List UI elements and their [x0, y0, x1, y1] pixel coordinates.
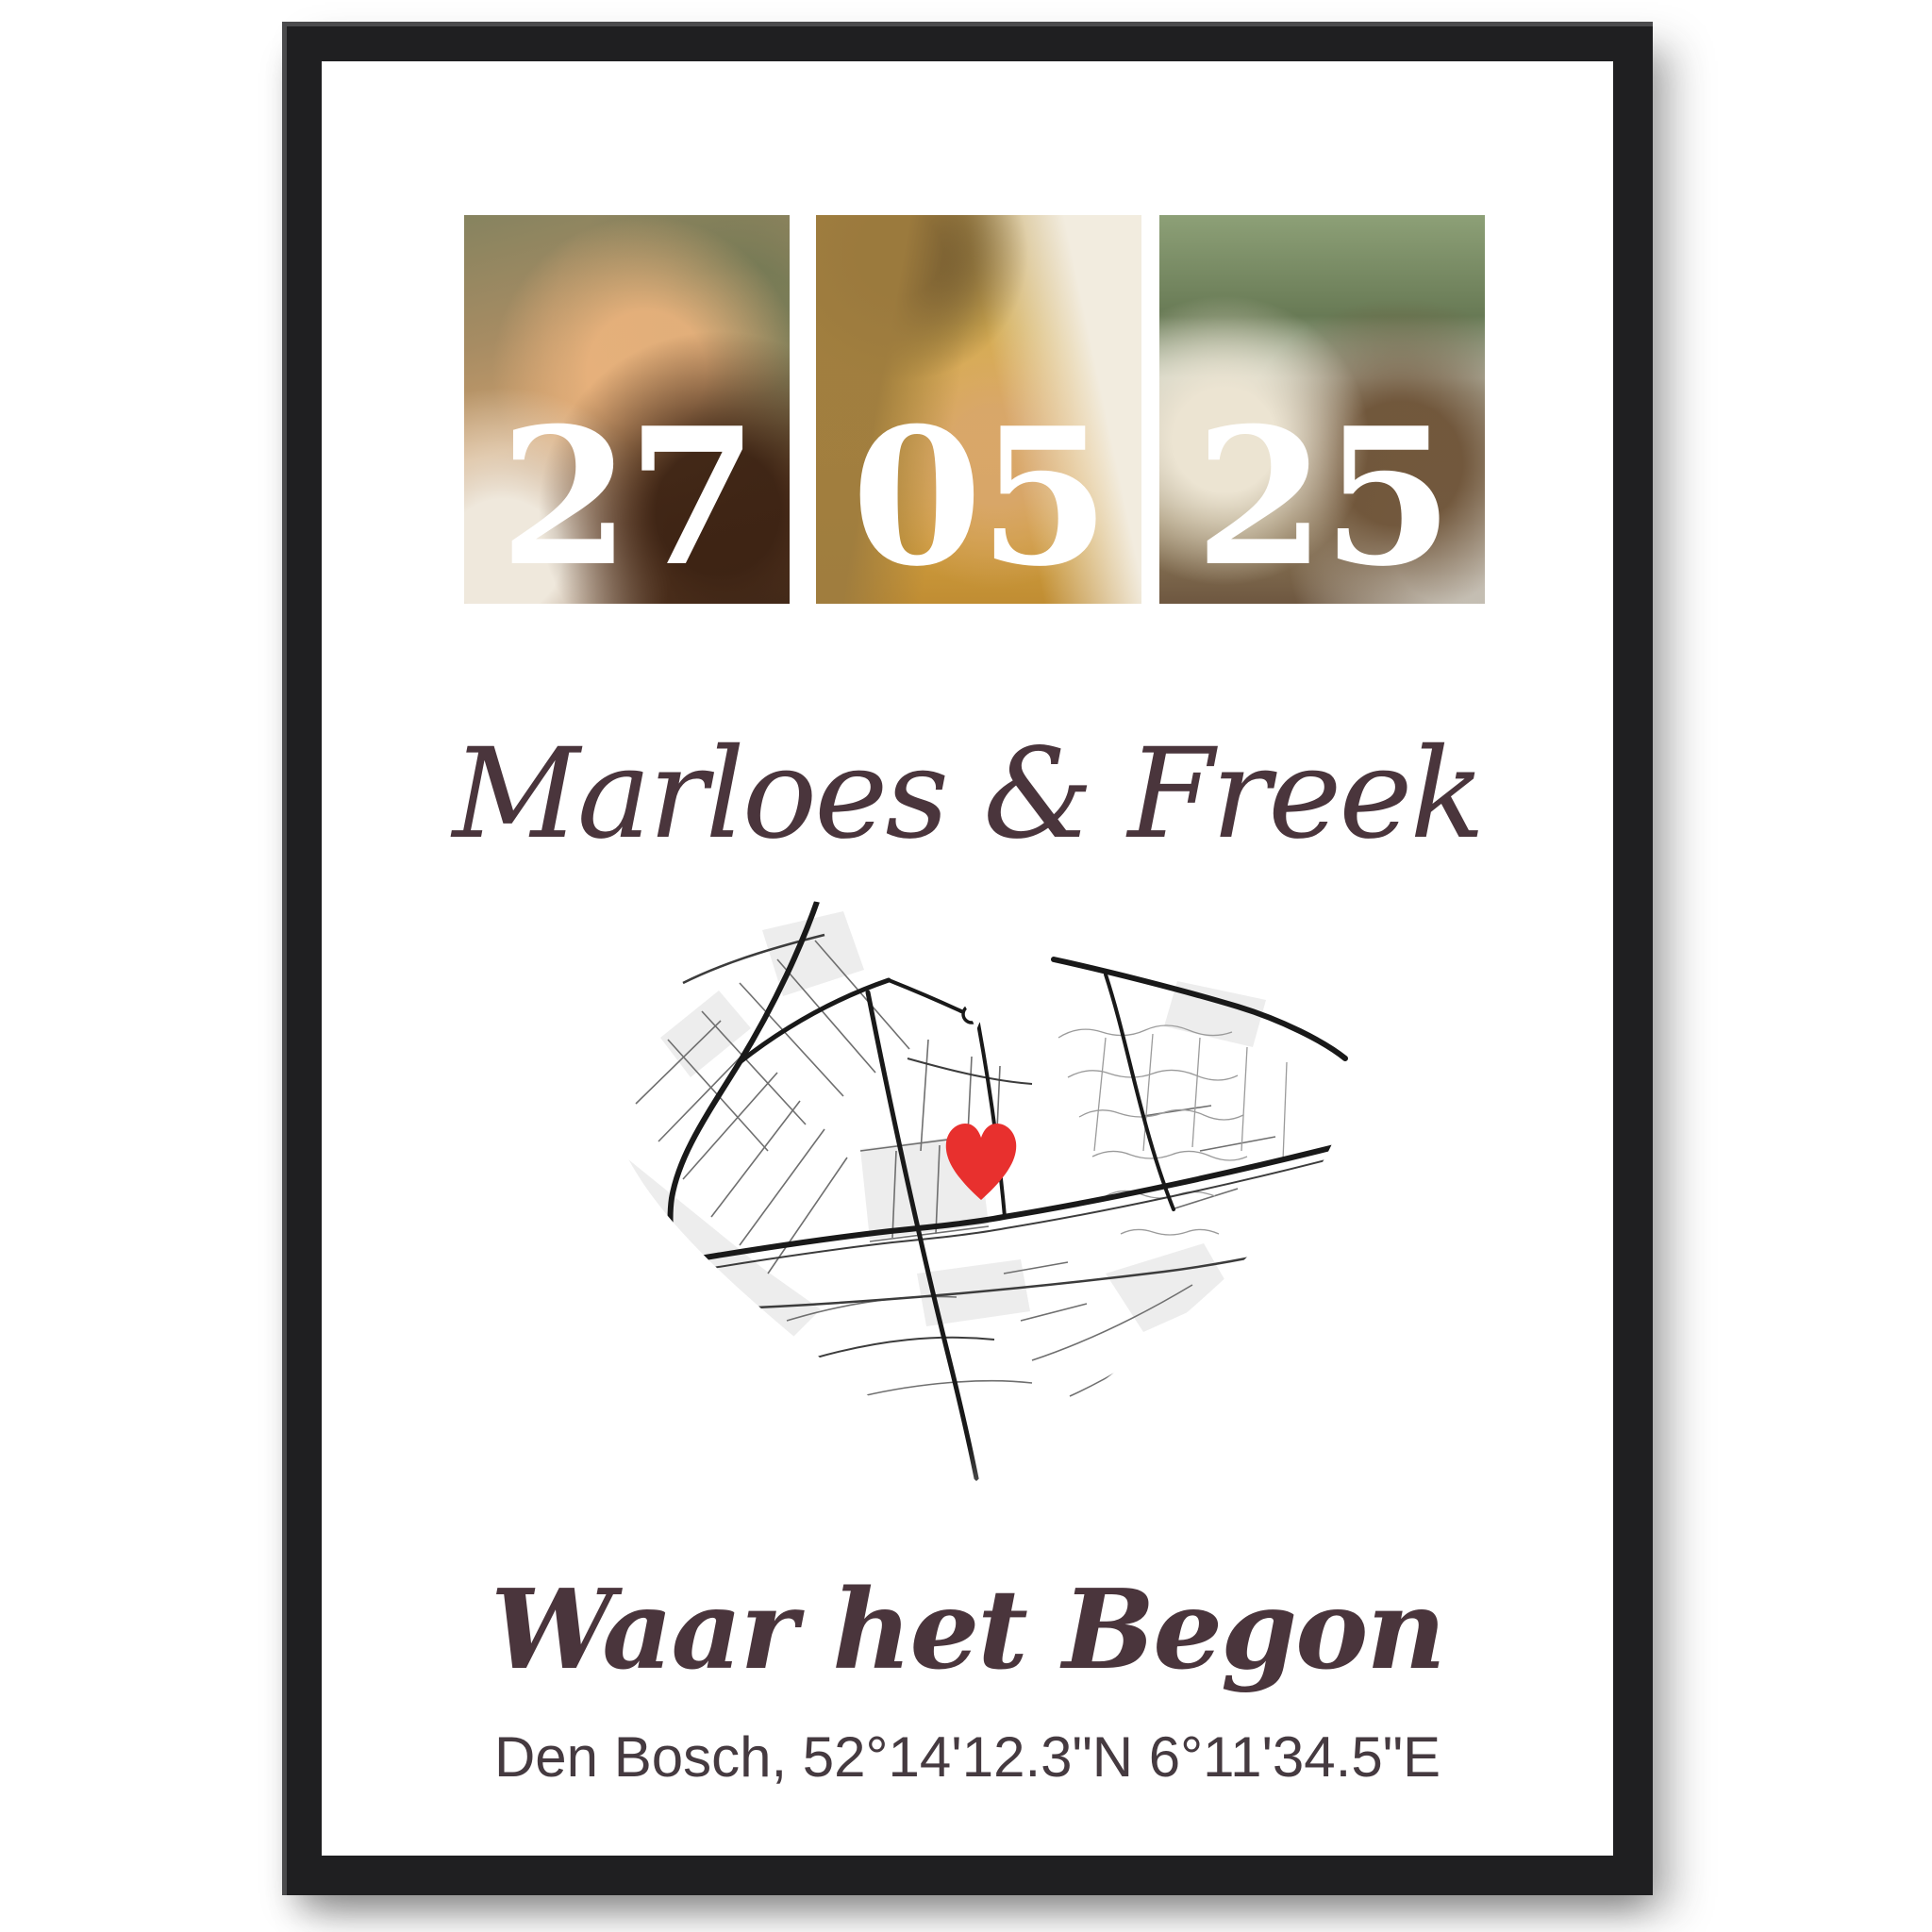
date-day-overlay: 27 — [464, 404, 790, 592]
poster-coordinates: Den Bosch, 52°14'12.3"N 6°11'34.5"E — [322, 1729, 1613, 1786]
photo-couple-nose-touch: 27 — [464, 215, 790, 604]
heart-map — [577, 868, 1375, 1504]
photo-couple-embrace: 25 — [1159, 215, 1485, 604]
map-svg — [577, 868, 1375, 1504]
poster-title: Waar het Begon — [322, 1571, 1613, 1691]
date-year-overlay: 25 — [1159, 404, 1485, 592]
couple-names: Marloes & Freek — [322, 726, 1613, 863]
date-month-overlay: 05 — [816, 404, 1141, 592]
poster: 27 05 25 Marloes & Freek — [322, 61, 1613, 1856]
photo-pinky-hands: 05 — [816, 215, 1141, 604]
wall-background: 27 05 25 Marloes & Freek — [0, 0, 1932, 1932]
picture-frame: 27 05 25 Marloes & Freek — [282, 22, 1653, 1895]
